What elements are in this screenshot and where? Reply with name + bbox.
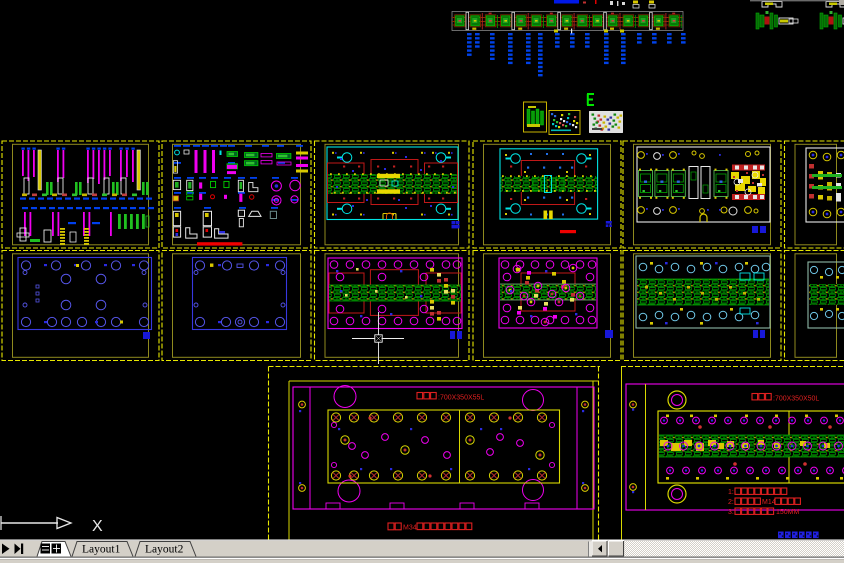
svg-text:M14: M14 <box>762 499 776 506</box>
svg-text:M34: M34 <box>403 525 417 532</box>
svg-text:Layout1: Layout1 <box>82 544 121 556</box>
svg-text:1:: 1: <box>728 489 734 496</box>
svg-text::700X350X50L: :700X350X50L <box>773 396 819 403</box>
svg-text::700X350X55L: :700X350X55L <box>438 395 484 402</box>
svg-text:2:: 2: <box>728 499 734 506</box>
svg-text:3:: 3: <box>728 509 734 516</box>
svg-text:X: X <box>92 518 103 535</box>
svg-text:150MM: 150MM <box>776 509 800 516</box>
svg-text:Layout2: Layout2 <box>145 544 184 556</box>
